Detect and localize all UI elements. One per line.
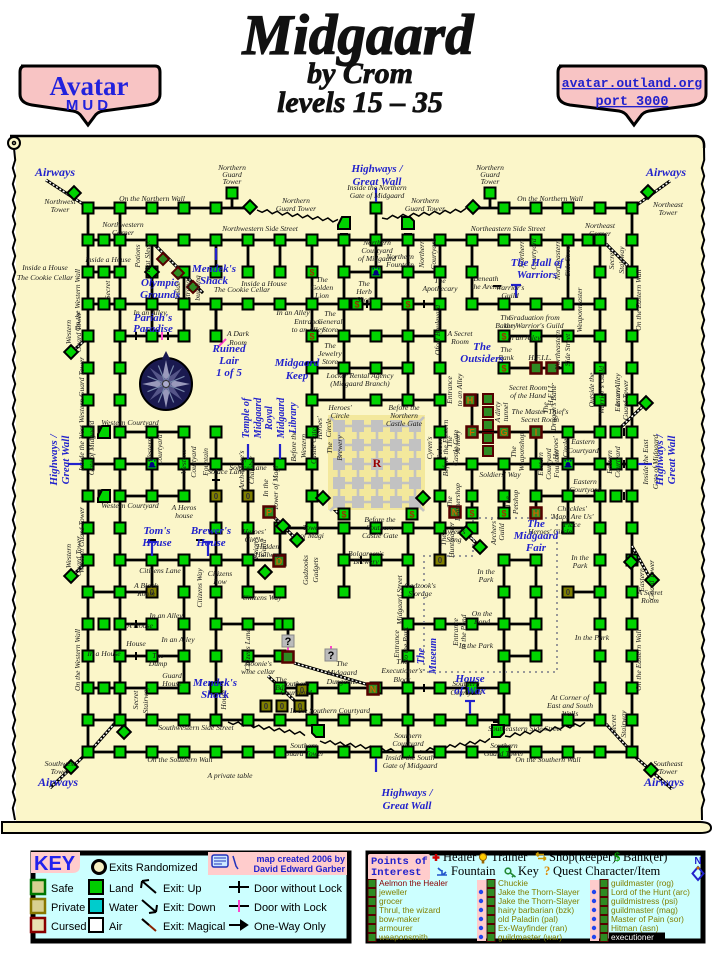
svg-text:Midgaard: Midgaard [326, 668, 357, 677]
svg-text:H: H [533, 509, 540, 519]
svg-text:Guard Tower: Guard Tower [284, 749, 324, 758]
svg-text:(Midgaard Branch): (Midgaard Branch) [330, 379, 390, 388]
svg-text:Western: Western [145, 438, 154, 462]
svg-text:Citizens Lane: Citizens Lane [139, 566, 181, 575]
svg-text:Western: Western [299, 434, 308, 458]
svg-text:Highways /: Highways / [48, 434, 60, 487]
svg-text:Side Street: Side Street [563, 333, 572, 366]
svg-text:the Warrior's Guild: the Warrior's Guild [504, 321, 563, 330]
svg-text:Executioner's: Executioner's [380, 666, 422, 675]
svg-text:Store: Store [322, 357, 338, 366]
svg-text:In the Park: In the Park [574, 633, 610, 642]
svg-text:Castle Gate: Castle Gate [362, 531, 399, 540]
svg-text:A Dark: A Dark [226, 329, 250, 338]
svg-text:On the Eastern Wall: On the Eastern Wall [634, 269, 643, 331]
svg-text:Stairway: Stairway [141, 686, 150, 714]
svg-text:Library: Library [288, 402, 299, 435]
svg-text:Huntmaster: Huntmaster [447, 522, 456, 559]
svg-text:Room: Room [450, 337, 469, 346]
svg-text:Western Courtyard: Western Courtyard [101, 501, 159, 510]
svg-text:wine cellar: wine cellar [241, 667, 275, 676]
svg-text:Midgaard: Midgaard [513, 530, 559, 542]
svg-text:Secret: Secret [103, 280, 112, 300]
svg-text:Apothecary: Apothecary [421, 284, 458, 293]
svg-text:Bank(er): Bank(er) [623, 850, 667, 864]
svg-text:Tower: Tower [659, 208, 678, 217]
svg-text:$: $ [501, 332, 506, 342]
svg-text:Petshop: Petshop [511, 490, 520, 516]
svg-text:to the Pond: to the Pond [459, 614, 468, 649]
svg-text:Potions: Potions [133, 244, 142, 268]
svg-text:Highways /: Highways / [350, 163, 403, 175]
svg-text:The: The [396, 657, 408, 666]
svg-text:Museum: Museum [428, 638, 439, 675]
svg-text:Inside the West: Inside the West [77, 424, 86, 472]
svg-text:to an Alley: to an Alley [455, 373, 464, 406]
svg-text:Courtyard: Courtyard [392, 739, 424, 748]
svg-text:Northern: Northern [417, 240, 426, 269]
svg-text:Northwestern Side Street: Northwestern Side Street [221, 224, 299, 233]
svg-text:Northeastern Side Street: Northeastern Side Street [470, 224, 546, 233]
svg-text:Inside the East: Inside the East [641, 439, 650, 486]
svg-text:Leathershop: Leathershop [453, 483, 462, 522]
svg-text:Guild: Guild [501, 291, 519, 300]
svg-text:Highways /: Highways / [654, 434, 666, 487]
svg-text:Guild: Guild [497, 523, 506, 541]
svg-text:?: ? [328, 650, 335, 662]
svg-text:The: The [473, 341, 491, 353]
svg-text:Exit: Down: Exit: Down [163, 902, 216, 914]
svg-text:Guard Tower: Guard Tower [621, 380, 630, 420]
svg-text:In a House: In a House [86, 649, 121, 658]
svg-text:Entrance: Entrance [445, 375, 454, 404]
svg-text:Stairway: Stairway [619, 710, 628, 738]
svg-text:Inside a House: Inside a House [21, 263, 68, 272]
svg-text:levels 15 – 35: levels 15 – 35 [277, 86, 443, 119]
svg-text:Airways: Airways [645, 165, 686, 179]
svg-text:Place: Place [562, 520, 581, 529]
svg-text:$: $ [309, 268, 314, 278]
svg-text:Tower: Tower [223, 177, 242, 186]
svg-text:$: $ [614, 850, 620, 864]
svg-text:Citizens Way: Citizens Way [195, 568, 204, 608]
svg-text:Grounds: Grounds [140, 289, 180, 301]
svg-text:Midgaard Street: Midgaard Street [395, 574, 404, 625]
svg-text:Door with Lock: Door with Lock [254, 902, 327, 914]
svg-text:$: $ [341, 510, 346, 520]
svg-text:On the Southern Wall: On the Southern Wall [147, 755, 212, 764]
svg-text:house: house [175, 511, 193, 520]
svg-text:House: House [161, 679, 182, 688]
svg-text:the Arena: the Arena [471, 282, 501, 291]
svg-text:In the Southern Courtyard: In the Southern Courtyard [289, 706, 370, 715]
svg-text:Citizens Way: Citizens Way [242, 593, 282, 602]
svg-text:Key: Key [518, 864, 540, 878]
svg-text:G: G [500, 428, 507, 438]
svg-text:Guard Tower: Guard Tower [74, 312, 83, 352]
svg-text:Midgaard: Midgaard [276, 397, 287, 440]
svg-text:Fountain: Fountain [552, 450, 561, 479]
svg-text:H: H [467, 396, 474, 406]
svg-text:Water: Water [109, 902, 138, 914]
svg-text:In an Alley: In an Alley [275, 308, 310, 317]
svg-text:1 of 5: 1 of 5 [216, 367, 242, 379]
svg-text:Saloon: Saloon [435, 437, 444, 458]
svg-text:Inside a House: Inside a House [84, 255, 131, 264]
svg-text:Castle Gate: Castle Gate [309, 427, 318, 464]
svg-text:Courtyard: Courtyard [280, 688, 312, 697]
svg-text:House: House [141, 537, 171, 549]
svg-text:David Edward Garber: David Edward Garber [253, 864, 345, 874]
svg-text:Room: Room [136, 589, 155, 598]
svg-text:Storage: Storage [408, 589, 432, 598]
svg-text:Shack: Shack [201, 689, 230, 701]
svg-text:Lion: Lion [314, 291, 329, 300]
svg-text:?: ? [544, 864, 550, 878]
svg-text:Pond: Pond [473, 617, 490, 626]
svg-text:Gate of Midgaard: Gate of Midgaard [350, 191, 405, 200]
svg-text:Tom's: Tom's [143, 525, 170, 537]
svg-text:Courtyard: Courtyard [569, 485, 601, 494]
svg-text:Keep: Keep [285, 370, 309, 382]
svg-text:Exit: Magical: Exit: Magical [163, 921, 225, 933]
svg-text:Park: Park [478, 575, 494, 584]
svg-text:Great Wall: Great Wall [383, 800, 433, 812]
svg-text:Inside a House: Inside a House [240, 279, 287, 288]
svg-text:House: House [454, 673, 484, 685]
svg-text:Secret: Secret [131, 690, 140, 710]
svg-text:Royal: Royal [264, 406, 275, 431]
svg-text:Warrior's Guild: Warrior's Guild [597, 366, 606, 414]
svg-text:avatar.outland.org: avatar.outland.org [562, 76, 703, 91]
svg-text:Highways /: Highways / [380, 787, 433, 799]
svg-text:MUD: MUD [66, 97, 112, 114]
svg-text:The Hall of: The Hall of [511, 257, 565, 269]
svg-text:In an Alley: In an Alley [160, 635, 195, 644]
svg-text:Great Wall: Great Wall [60, 435, 72, 485]
svg-text:Southeastern Side Street: Southeastern Side Street [488, 724, 563, 733]
svg-text:Exit: Up: Exit: Up [163, 883, 202, 895]
svg-text:The: The [527, 518, 545, 530]
svg-text:The: The [416, 647, 427, 664]
svg-text:The: The [336, 659, 348, 668]
svg-text:?: ? [285, 636, 292, 648]
svg-text:Courtyard: Courtyard [567, 446, 599, 455]
svg-text:Great Wall: Great Wall [353, 176, 403, 188]
svg-text:Eastern: Eastern [570, 437, 595, 446]
svg-text:0: 0 [438, 556, 443, 565]
svg-text:Soldiers' Way: Soldiers' Way [479, 470, 521, 479]
svg-text:port 3000: port 3000 [596, 95, 669, 110]
svg-text:Western: Western [64, 544, 73, 568]
svg-text:tunnel: tunnel [501, 403, 510, 422]
svg-text:Corner: Corner [589, 229, 611, 238]
svg-text:On the Eastern Wall: On the Eastern Wall [634, 629, 643, 691]
svg-text:H.F.I.L.: H.F.I.L. [527, 353, 552, 362]
svg-text:F: F [469, 428, 475, 438]
svg-text:Western Guard Tower: Western Guard Tower [77, 507, 86, 573]
svg-text:Secret Room: Secret Room [521, 415, 560, 424]
svg-text:Shop(keeper): Shop(keeper) [549, 850, 616, 864]
svg-text:Circle: Circle [331, 411, 350, 420]
svg-text:Dump: Dump [148, 659, 168, 668]
svg-text:Western: Western [64, 320, 73, 344]
svg-text:Arch-Mage's: Arch-Mage's [237, 451, 246, 491]
svg-text:0: 0 [264, 702, 269, 711]
svg-text:A House: A House [126, 621, 153, 630]
svg-text:of Magi: of Magi [300, 531, 324, 540]
svg-text:$: $ [409, 510, 414, 520]
svg-text:Castle Gate: Castle Gate [386, 419, 423, 428]
svg-text:In the: In the [261, 479, 270, 498]
svg-text:to the Park: to the Park [401, 627, 410, 661]
svg-text:Air: Air [109, 921, 123, 933]
svg-text:of the Hand: of the Hand [510, 391, 546, 400]
svg-text:Mendek's: Mendek's [192, 677, 237, 689]
svg-text:Weaponshop: Weaponshop [517, 433, 526, 472]
svg-text:Door without Lock: Door without Lock [254, 883, 343, 895]
svg-text:strange: strange [183, 276, 192, 299]
svg-text:Before the: Before the [289, 430, 298, 462]
svg-text:Corner: Corner [112, 228, 134, 237]
svg-text:Store: Store [322, 325, 338, 334]
svg-text:On the Southern Wall: On the Southern Wall [515, 755, 580, 764]
svg-text:Midgaard: Midgaard [253, 397, 264, 440]
svg-text:Stairway: Stairway [617, 246, 626, 274]
svg-text:Olympic: Olympic [141, 277, 179, 289]
svg-text:Chamber: Chamber [247, 456, 256, 484]
svg-text:$: $ [501, 364, 506, 374]
svg-text:Southern: Southern [282, 679, 310, 688]
svg-text:Land: Land [109, 883, 133, 895]
svg-text:Midgaard: Midgaard [274, 357, 320, 369]
svg-text:Room: Room [640, 596, 659, 605]
svg-text:0: 0 [280, 702, 285, 711]
svg-text:Weaponmaster: Weaponmaster [575, 288, 584, 333]
svg-text:Trainer: Trainer [491, 850, 528, 864]
svg-text:0: 0 [214, 492, 219, 501]
svg-text:$: $ [405, 300, 410, 310]
svg-text:Guild: Guild [259, 539, 268, 557]
svg-text:I: I [535, 428, 538, 438]
svg-text:Guard Tower: Guard Tower [484, 749, 524, 758]
svg-text:Airways: Airways [34, 165, 75, 179]
svg-text:Private: Private [51, 902, 85, 914]
svg-text:Park: Park [572, 561, 588, 570]
svg-text:guildmaster (war): guildmaster (war) [498, 932, 562, 942]
svg-text:Dungeons: Dungeons [326, 677, 358, 686]
svg-text:Temple of: Temple of [241, 396, 252, 438]
svg-text:Secret: Secret [607, 250, 616, 270]
svg-text:Cursed: Cursed [51, 921, 86, 933]
svg-text:Ofcol Boulevard: Ofcol Boulevard [433, 305, 442, 355]
svg-text:A private table: A private table [207, 771, 254, 780]
svg-text:Mendek's: Mendek's [191, 263, 236, 275]
svg-text:On the Northern Wall: On the Northern Wall [119, 194, 185, 203]
svg-text:Fountain: Fountain [201, 448, 210, 477]
svg-text:Row: Row [212, 577, 227, 586]
svg-text:On the Northern Wall: On the Northern Wall [517, 194, 583, 203]
svg-text:Exits Randomized: Exits Randomized [109, 862, 198, 874]
svg-text:Block: Block [393, 675, 411, 684]
svg-text:Western Guard Tower: Western Guard Tower [77, 357, 86, 423]
svg-text:N: N [370, 685, 377, 695]
svg-text:Outsiders: Outsiders [460, 353, 503, 365]
svg-text:Airways: Airways [37, 775, 78, 789]
svg-text:Gadgets: Gadgets [311, 557, 320, 582]
svg-text:Courtyard: Courtyard [189, 446, 198, 478]
svg-text:Fair: Fair [525, 542, 547, 554]
svg-text:Tower: Tower [481, 177, 500, 186]
svg-text:of Wax: of Wax [454, 685, 486, 697]
svg-text:executioner: executioner [611, 932, 654, 942]
svg-text:Guard Tower: Guard Tower [405, 204, 445, 213]
svg-text:Shop: Shop [356, 295, 371, 304]
svg-text:In an Alley: In an Alley [506, 333, 541, 342]
svg-text:Healer: Healer [443, 850, 477, 864]
svg-text:Armory: Armory [453, 430, 462, 455]
svg-text:R: R [373, 456, 382, 470]
svg-text:$: $ [501, 509, 506, 519]
svg-text:Secret: Secret [609, 714, 618, 734]
svg-text:The Cookie Cellar: The Cookie Cellar [17, 273, 73, 282]
svg-text:that Sleep!: that Sleep! [143, 239, 152, 272]
svg-text:Walls: Walls [562, 709, 579, 718]
svg-text:Courtyard: Courtyard [429, 238, 438, 270]
svg-text:Side Street: Side Street [563, 243, 572, 276]
svg-text:Lair: Lair [218, 355, 239, 367]
svg-text:map created 2006 by: map created 2006 by [256, 854, 345, 864]
svg-text:Warriors: Warriors [517, 269, 557, 281]
svg-text:One-Way Only: One-Way Only [254, 921, 326, 933]
svg-text:Brewery: Brewery [335, 435, 344, 461]
svg-text:Cyren's: Cyren's [425, 437, 434, 460]
svg-text:Paradise: Paradise [133, 323, 173, 335]
svg-text:Gadzooks: Gadzooks [301, 555, 310, 585]
svg-text:Outside the: Outside the [587, 372, 596, 407]
svg-text:Fountain: Fountain [385, 260, 414, 269]
svg-text:Tower of Magi: Tower of Magi [271, 466, 280, 510]
svg-text:Great Wall: Great Wall [666, 435, 678, 485]
svg-text:Airways: Airways [643, 775, 684, 789]
svg-text:Circle: Circle [324, 418, 333, 437]
svg-text:Gate of Midgaard: Gate of Midgaard [87, 421, 96, 476]
svg-text:Courtyard: Courtyard [155, 434, 164, 466]
svg-text:Western: Western [179, 450, 188, 474]
svg-text:Gate of Midgaard: Gate of Midgaard [383, 761, 438, 770]
svg-text:$: $ [469, 509, 474, 519]
svg-text:Guard Tower: Guard Tower [276, 204, 316, 213]
svg-text:Safe: Safe [51, 883, 74, 895]
svg-text:Quest Character/Item: Quest Character/Item [553, 864, 661, 878]
svg-text:Ruined: Ruined [211, 343, 246, 355]
svg-text:Western Courtyard: Western Courtyard [101, 418, 159, 427]
svg-text:In an Alley: In an Alley [148, 611, 183, 620]
svg-text:Shack: Shack [200, 275, 229, 287]
svg-text:Brewery: Brewery [353, 557, 379, 566]
svg-text:Courtyard: Courtyard [613, 446, 622, 478]
svg-text:Tower: Tower [51, 205, 70, 214]
svg-text:N: N [694, 856, 701, 867]
svg-text:0: 0 [566, 588, 571, 597]
svg-text:On the Western Wall: On the Western Wall [73, 629, 82, 691]
svg-text:weaponsmith: weaponsmith [378, 932, 428, 942]
svg-text:Entrance: Entrance [392, 629, 401, 658]
svg-text:House: House [125, 639, 146, 648]
svg-text:KEY: KEY [34, 853, 76, 875]
svg-text:Southwestern Side Street: Southwestern Side Street [158, 723, 234, 732]
svg-text:to an Alley: to an Alley [292, 325, 325, 334]
svg-text:Brewer's: Brewer's [190, 525, 231, 537]
svg-text:Fountain: Fountain [451, 864, 496, 878]
svg-text:The: The [325, 442, 334, 454]
svg-text:House: House [195, 537, 225, 549]
svg-text:Northeastern: Northeastern [553, 330, 562, 371]
svg-text:0: 0 [246, 492, 251, 501]
